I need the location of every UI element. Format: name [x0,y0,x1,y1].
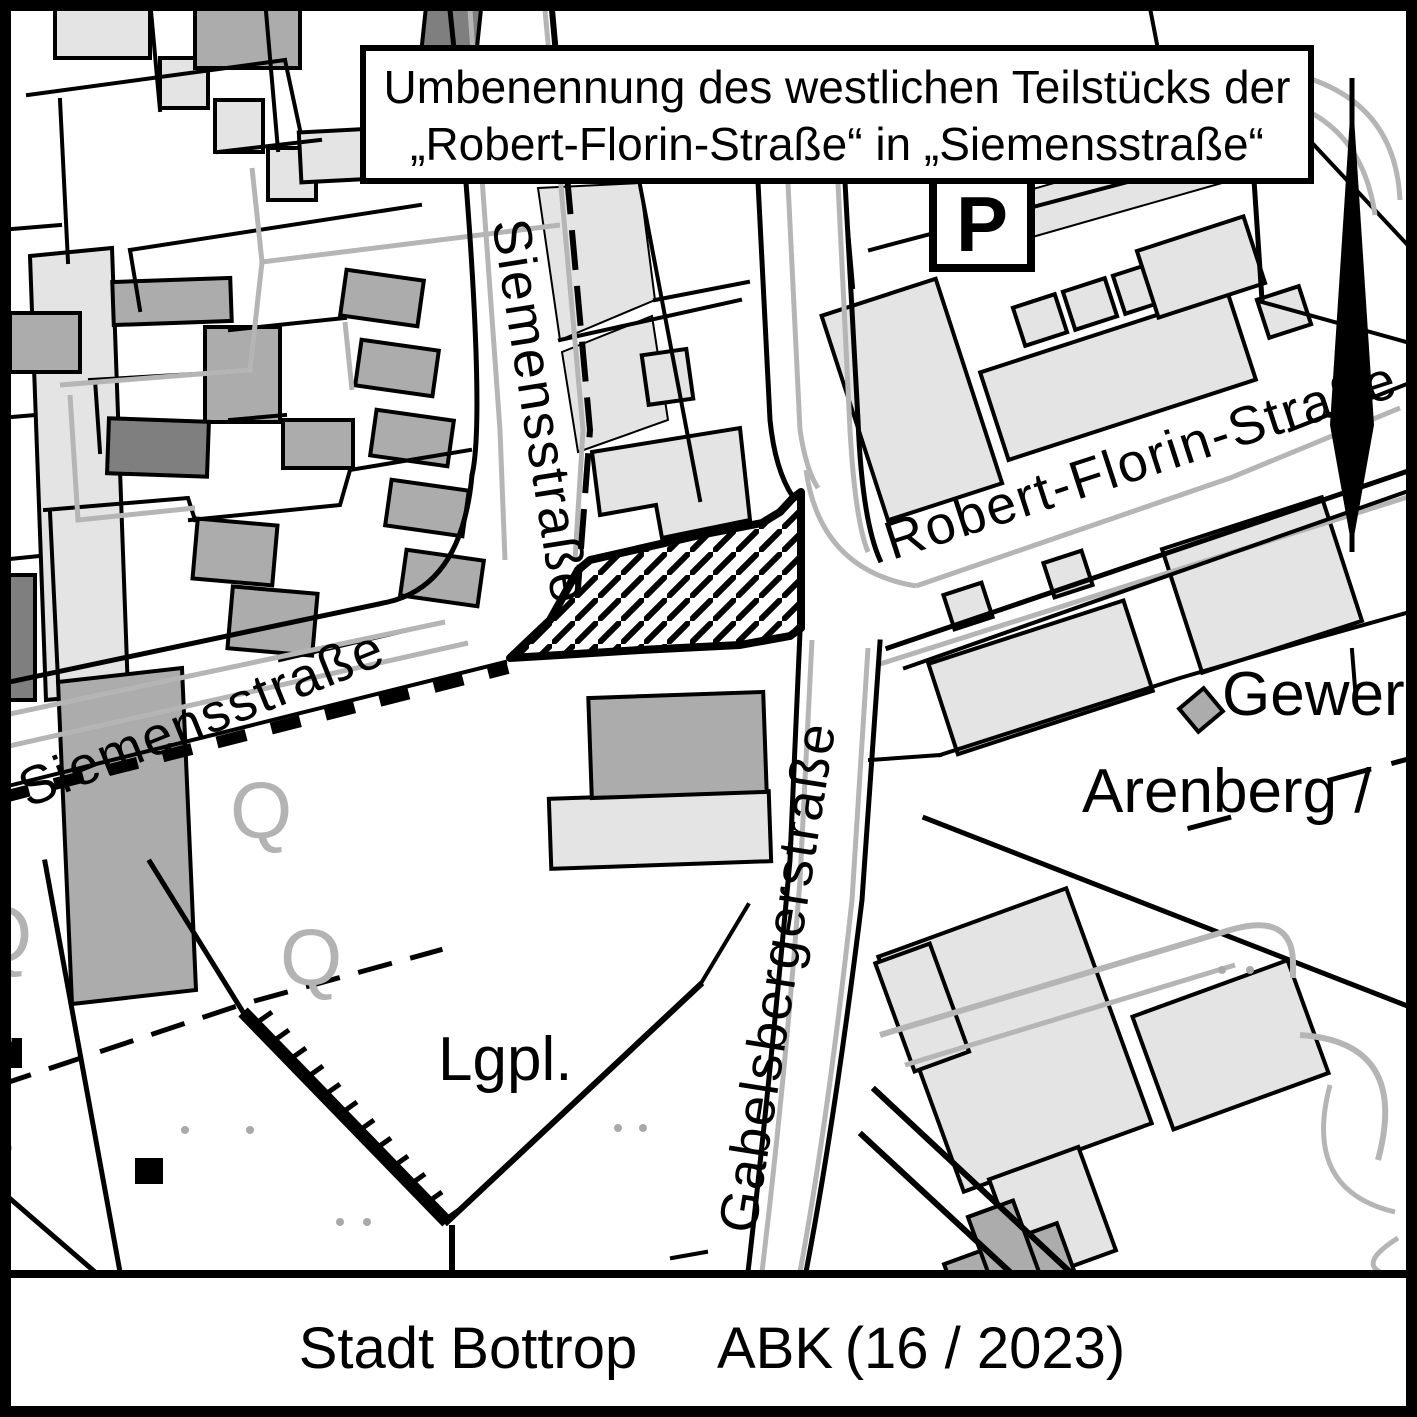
parking-letter: P [956,180,1008,268]
title-line-2: „Robert-Florin-Straße“ in „Siemensstraße… [410,118,1264,170]
title-box: Umbenennung des westlichen Teilstücks de… [363,48,1311,181]
footer-code: ABK [717,1316,833,1381]
q-symbol-upper: Q [230,766,292,855]
map-canvas: Siemensstraße Siemensstraße Robert-Flori… [0,0,1417,1417]
title-line-1: Umbenennung des westlichen Teilstücks de… [384,61,1291,113]
parking-icon: P [933,178,1031,268]
q-symbol-lower: Q [280,913,342,1002]
city-map: Siemensstraße Siemensstraße Robert-Flori… [0,0,1417,1417]
area-label-gewerbegebiet: Gewer [1222,660,1405,729]
footer-bar: Stadt Bottrop ABK (16 / 2023) [0,1270,1417,1417]
area-label-arenberg: Arenberg / [1082,757,1372,826]
footer-city: Stadt Bottrop [299,1316,638,1381]
footer-issue: (16 / 2023) [845,1316,1126,1381]
area-label-lagerplatz: Lgpl. [438,1025,572,1094]
